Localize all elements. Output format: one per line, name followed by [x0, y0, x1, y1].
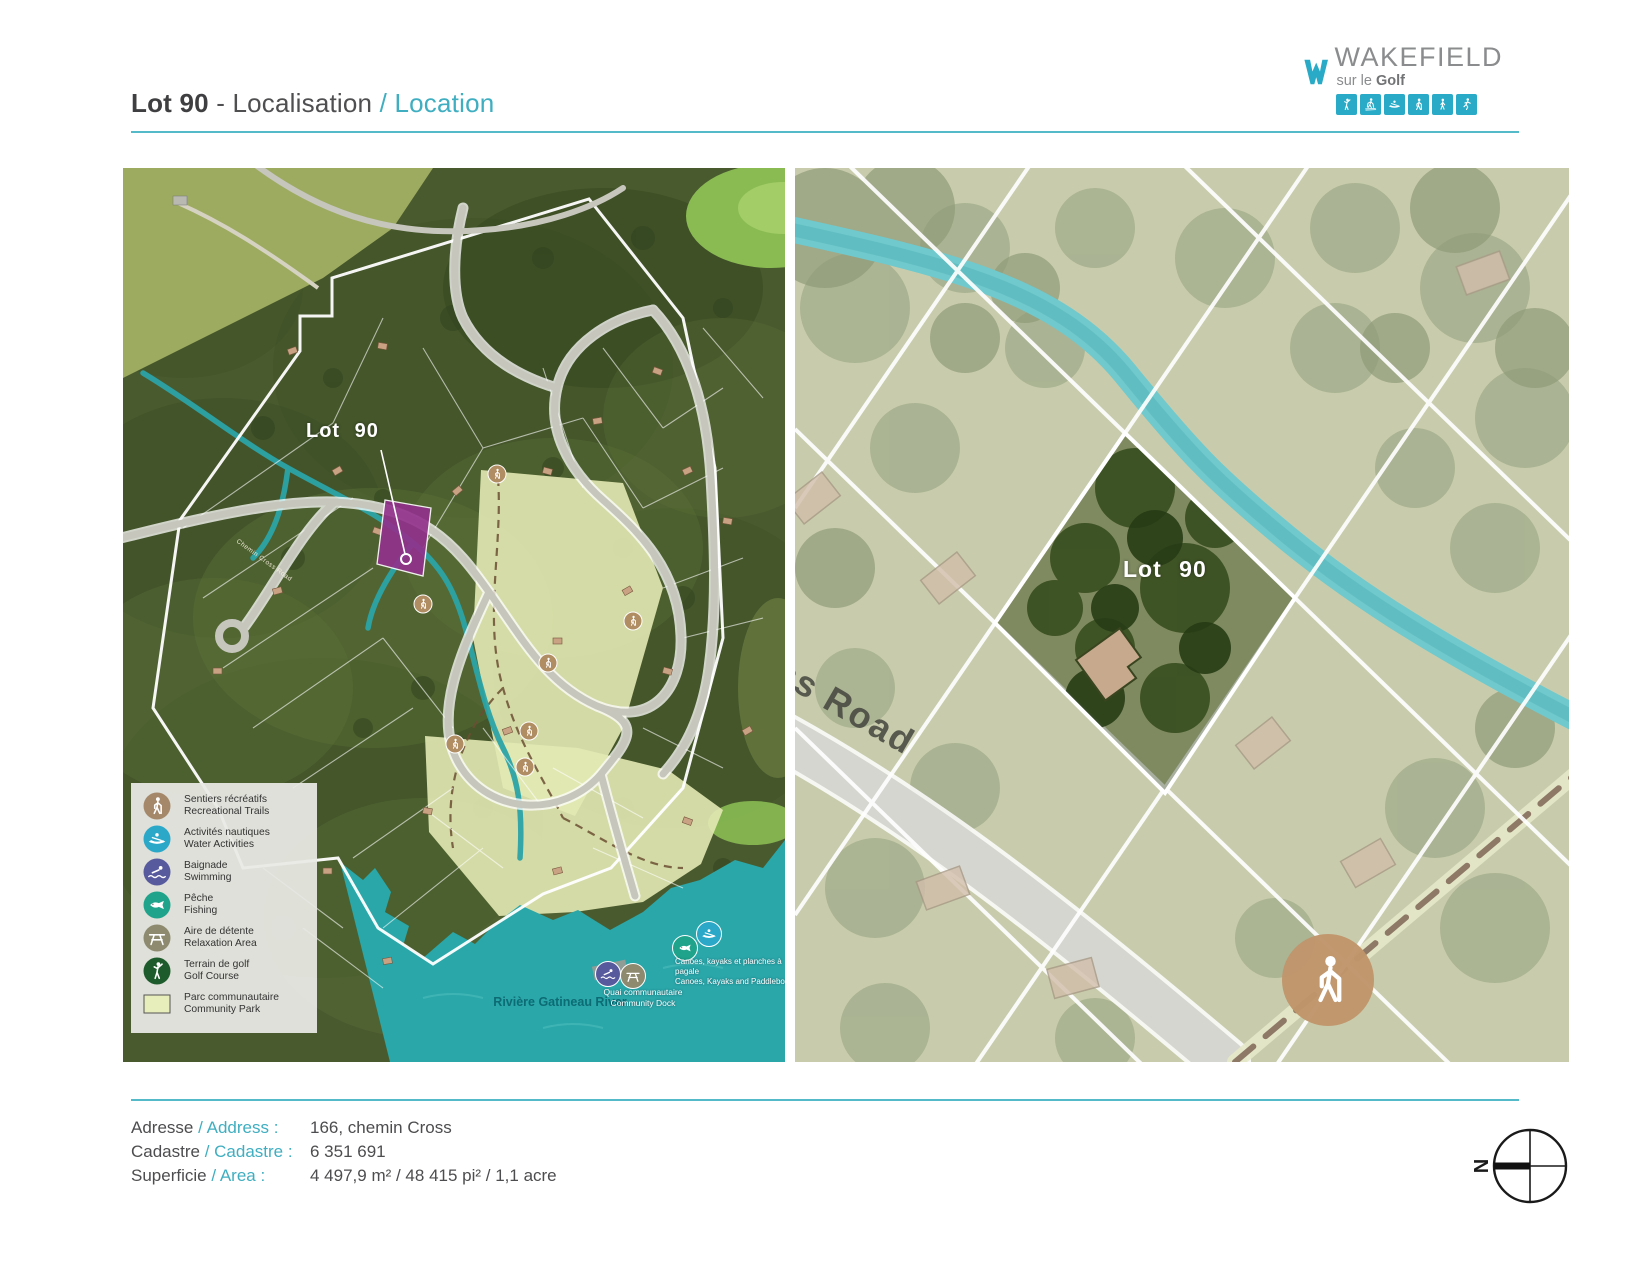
golf-icon — [1336, 94, 1357, 115]
hiker-icon — [143, 792, 171, 820]
wakefield-w-mark — [1303, 44, 1328, 100]
canoe-kayak-label: Canoes, kayaks et planches à pagale Cano… — [675, 957, 785, 987]
title-fr: Localisation — [232, 88, 372, 118]
community-dock-label: Quai communautaire Community Dock — [591, 987, 695, 1008]
lot-90-label: Lot 90 — [1123, 556, 1207, 583]
park-swatch-icon — [143, 990, 171, 1018]
legend-item-water-activities: Activités nautiquesWater Activities — [143, 825, 307, 853]
logo-brand: WAKEFIELD — [1334, 44, 1503, 71]
legend-item-trails: Sentiers récréatifsRecreational Trails — [143, 792, 307, 820]
trailhead-marker — [1282, 934, 1374, 1026]
header-divider — [131, 131, 1519, 133]
golfer-icon — [143, 957, 171, 985]
hike-icon — [1408, 94, 1429, 115]
detail-row-address: Adresse / Address : 166, chemin Cross — [131, 1116, 557, 1140]
lot-detail-illustration — [795, 168, 1569, 1062]
trail-run-icon — [1456, 94, 1477, 115]
footer-divider — [131, 1099, 1519, 1101]
page-title: Lot 90 - Localisation / Location — [131, 88, 494, 119]
canoe-icon — [1384, 94, 1405, 115]
detail-row-cadastre: Cadastre / Cadastre : 6 351 691 — [131, 1140, 557, 1164]
wakefield-logo: WAKEFIELD sur le Golf — [1303, 44, 1503, 115]
community-overview-map: Lot 90 Chemin Cross Road Rivière Gatinea… — [123, 168, 785, 1062]
legend-item-golf: Terrain de golfGolf Course — [143, 957, 307, 985]
picnic-table-icon — [143, 924, 171, 952]
north-compass: N — [1470, 1116, 1590, 1216]
address-value: 166, chemin Cross — [310, 1116, 452, 1140]
lot-90-detail-map: Lot 90 ss Road — [795, 168, 1569, 1062]
cross-country-ski-icon — [1360, 94, 1381, 115]
title-en: Location — [394, 88, 494, 118]
lot-location-sheet: Lot 90 - Localisation / Location WAKEFIE… — [0, 0, 1650, 1275]
swimmer-icon — [143, 858, 171, 886]
fish-icon — [143, 891, 171, 919]
detail-row-area: Superficie / Area : 4 497,9 m² / 48 415 … — [131, 1164, 557, 1188]
legend-item-community-park: Parc communautaireCommunity Park — [143, 990, 307, 1018]
cadastre-value: 6 351 691 — [310, 1140, 386, 1164]
north-label: N — [1471, 1159, 1493, 1173]
property-details: Adresse / Address : 166, chemin Cross Ca… — [131, 1116, 557, 1188]
canoe-icon — [143, 825, 171, 853]
walk-icon — [1432, 94, 1453, 115]
lot-90-label: Lot 90 — [306, 420, 379, 443]
logo-activity-icons — [1336, 94, 1503, 115]
map-legend: Sentiers récréatifsRecreational Trails A… — [131, 783, 317, 1033]
legend-item-fishing: PêcheFishing — [143, 891, 307, 919]
area-value: 4 497,9 m² / 48 415 pi² / 1,1 acre — [310, 1164, 557, 1188]
legend-item-relaxation: Aire de détenteRelaxation Area — [143, 924, 307, 952]
title-lot: Lot 90 — [131, 88, 209, 118]
legend-item-swimming: BaignadeSwimming — [143, 858, 307, 886]
